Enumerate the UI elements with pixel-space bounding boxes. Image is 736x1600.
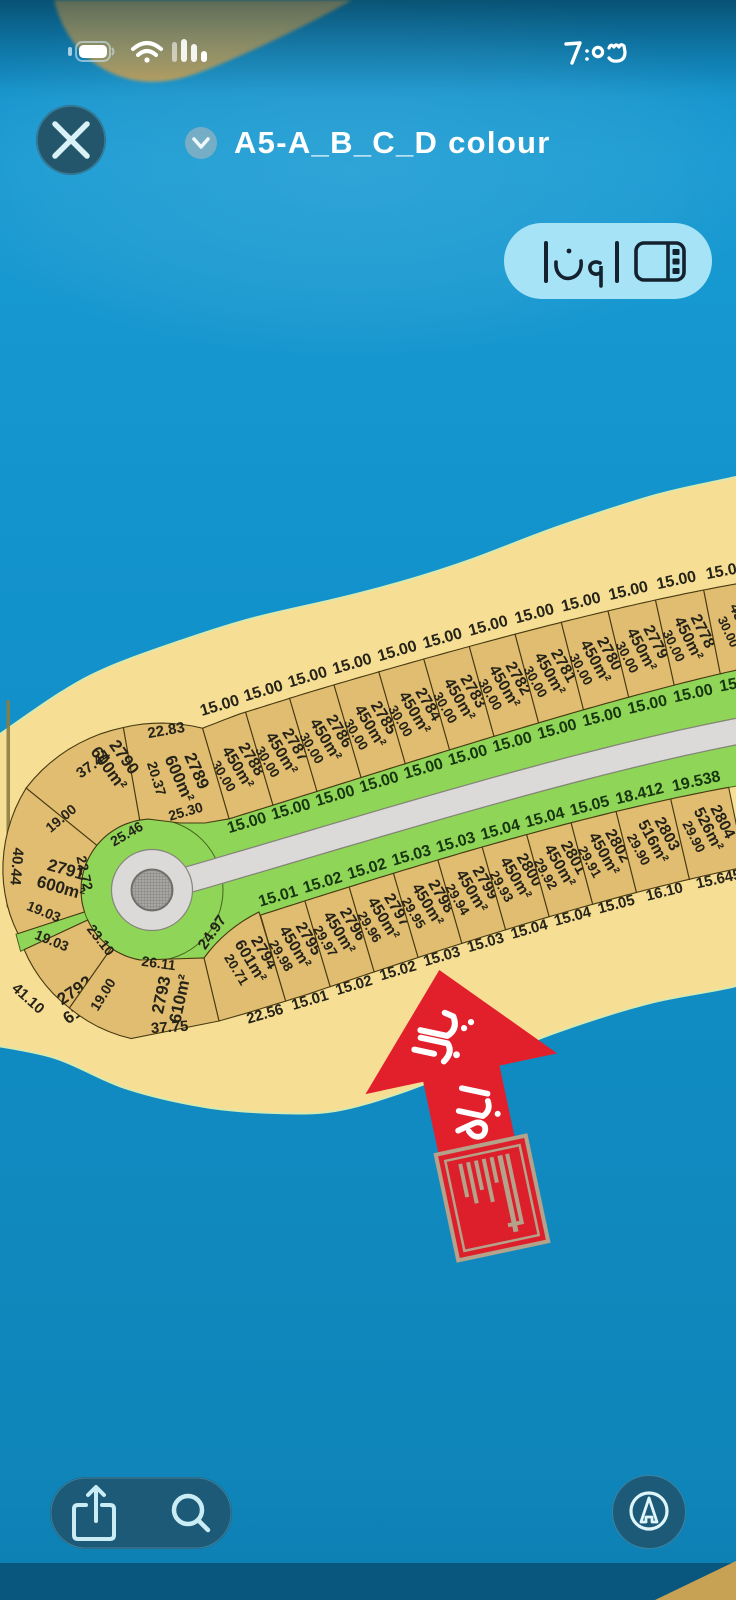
svg-text:37.75: 37.75: [150, 1018, 189, 1038]
svg-text:40.44: 40.44: [6, 847, 26, 887]
svg-text:A5-A_B_C_D colour: A5-A_B_C_D colour: [234, 125, 551, 160]
